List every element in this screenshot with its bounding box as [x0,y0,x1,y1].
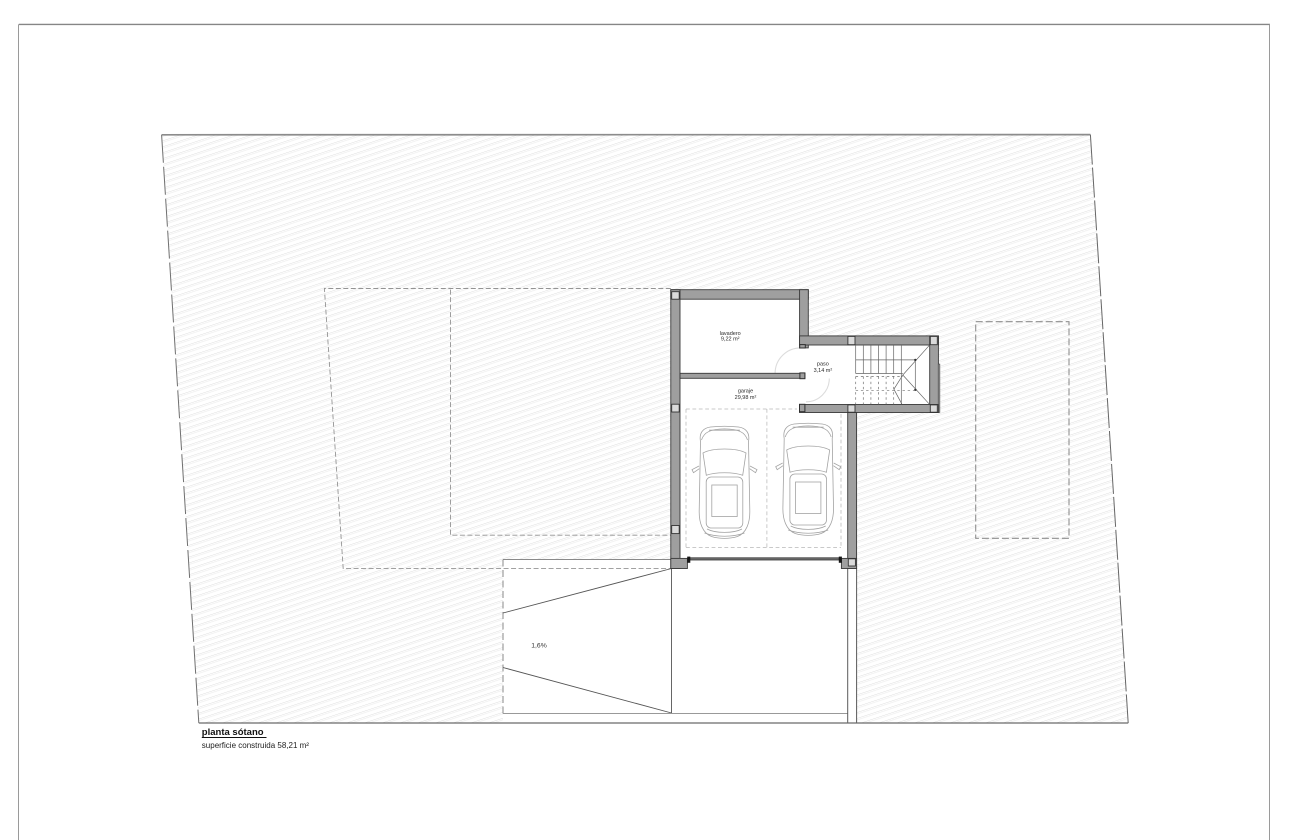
svg-text:superficie construida 58,21 m²: superficie construida 58,21 m² [202,741,309,750]
svg-text:3,14 m²: 3,14 m² [814,368,833,374]
svg-text:29,98 m²: 29,98 m² [735,395,757,401]
svg-text:paso: paso [817,362,829,368]
svg-text:1,6%: 1,6% [531,643,547,650]
svg-text:garaje: garaje [738,388,753,394]
svg-text:9,22 m²: 9,22 m² [721,336,740,342]
svg-text:planta sótano: planta sótano [202,727,264,738]
